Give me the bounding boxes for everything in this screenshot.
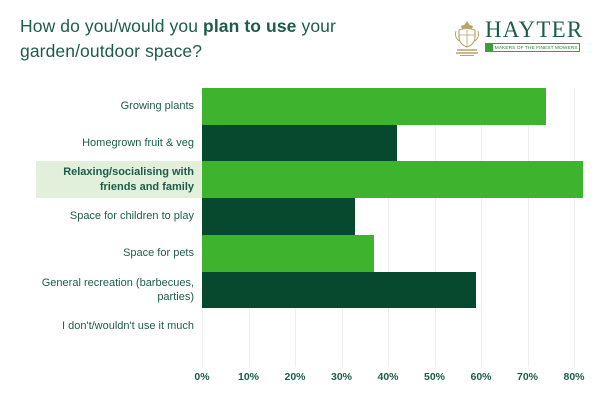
chart-row: Growing plants <box>0 88 600 125</box>
category-label: Space for pets <box>36 235 202 272</box>
category-label-cell: I don't/wouldn't use it much <box>0 308 202 345</box>
chart-row: Relaxing/socialising with friends and fa… <box>0 161 600 198</box>
tagline-square-icon <box>486 44 493 51</box>
category-label: General recreation (barbecues, parties) <box>36 272 202 309</box>
hayter-crest-icon <box>452 19 482 57</box>
bar-82pct <box>202 161 583 198</box>
category-label-cell: Relaxing/socialising with friends and fa… <box>0 161 202 198</box>
bar-33pct <box>202 198 355 235</box>
x-tick-label: 80% <box>552 371 596 383</box>
hayter-wordmark: HAYTER <box>485 18 583 41</box>
title-prefix: How do you/would you <box>20 16 203 36</box>
chart-row: Space for pets <box>0 235 600 272</box>
plot-cell <box>202 235 592 272</box>
x-tick-label: 60% <box>459 371 503 383</box>
hayter-tagline: MAKERS OF THE FINEST MOWERS <box>493 45 578 50</box>
category-label: Growing plants <box>36 88 202 125</box>
plot-cell <box>202 308 592 345</box>
plot-cell <box>202 198 592 235</box>
x-tick-label: 0% <box>180 371 224 383</box>
hayter-tagline-box: MAKERS OF THE FINEST MOWERS <box>485 43 580 52</box>
bar-37pct <box>202 235 374 272</box>
bar-74pct <box>202 88 546 125</box>
x-tick-label: 70% <box>506 371 550 383</box>
title-bold-phrase: plan to use <box>203 16 296 36</box>
chart-row: Homegrown fruit & veg <box>0 125 600 162</box>
category-label-cell: General recreation (barbecues, parties) <box>0 272 202 309</box>
plot-cell <box>202 88 592 125</box>
survey-infographic: How do you/would you plan to use your ga… <box>0 0 600 400</box>
plot-cell <box>202 125 592 162</box>
hayter-logo: HAYTER MAKERS OF THE FINEST MOWERS <box>452 18 584 58</box>
category-label: Space for children to play <box>36 198 202 235</box>
category-label-cell: Space for children to play <box>0 198 202 235</box>
category-label: Homegrown fruit & veg <box>36 125 202 162</box>
category-label-cell: Growing plants <box>0 88 202 125</box>
x-tick-label: 50% <box>413 371 457 383</box>
x-axis: 0%10%20%30%40%50%60%70%80% <box>202 371 592 387</box>
bar-chart: Growing plantsHomegrown fruit & vegRelax… <box>0 88 600 345</box>
category-label: I don't/wouldn't use it much <box>36 308 202 345</box>
hayter-logo-text: HAYTER MAKERS OF THE FINEST MOWERS <box>485 18 583 52</box>
category-label-cell: Homegrown fruit & veg <box>0 125 202 162</box>
page-title: How do you/would you plan to use your ga… <box>20 14 432 65</box>
category-label: Relaxing/socialising with friends and fa… <box>36 161 202 198</box>
plot-cell <box>202 272 592 309</box>
chart-row: I don't/wouldn't use it much <box>0 308 600 345</box>
x-tick-label: 30% <box>320 371 364 383</box>
x-tick-label: 40% <box>366 371 410 383</box>
plot-cell <box>202 161 592 198</box>
x-tick-label: 10% <box>227 371 271 383</box>
bar-59pct <box>202 272 476 309</box>
x-tick-label: 20% <box>273 371 317 383</box>
bar-42pct <box>202 125 397 162</box>
chart-row: General recreation (barbecues, parties) <box>0 272 600 309</box>
chart-row: Space for children to play <box>0 198 600 235</box>
category-label-cell: Space for pets <box>0 235 202 272</box>
